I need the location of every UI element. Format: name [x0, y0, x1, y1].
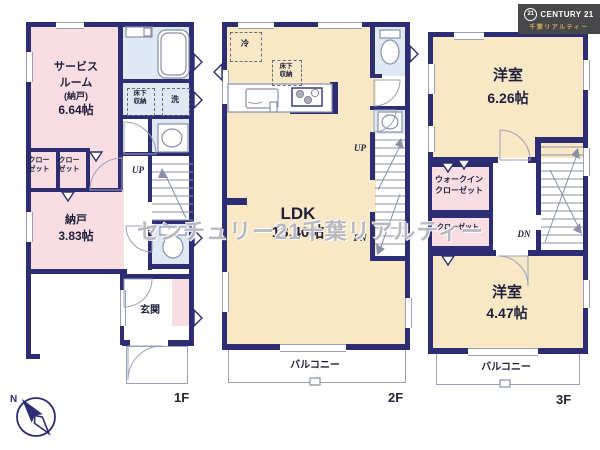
service-room-size: 6.64帖 [58, 104, 93, 117]
closet-label: クロー [59, 157, 80, 164]
closet-label: ゼット [59, 166, 80, 173]
folding-door-marker [90, 152, 102, 161]
exterior-door-marker [194, 310, 202, 326]
closet-label: ゼット [29, 166, 50, 173]
balcony-drain-icon [500, 380, 510, 387]
century21-logo: 21 CENTURY 21 千葉リアルティー [518, 4, 600, 34]
floorplan-2f-fixtures [222, 22, 416, 402]
service-room-name-2: ルーム [60, 78, 93, 90]
washer-icon [144, 28, 151, 36]
floor-label-2f: 2F [388, 390, 403, 405]
bedroom1-size: 6.26帖 [487, 91, 528, 106]
balcony-label: バルコニー [481, 363, 531, 374]
storage-room-name: 納戸 [65, 215, 87, 227]
service-room-name-3: (納戸) [64, 92, 88, 101]
exterior-door-marker [194, 92, 202, 108]
balcony-drain-icon [310, 378, 320, 385]
kitchen-sink-icon [246, 89, 278, 112]
door-arc [498, 256, 528, 286]
logo-row: 21 CENTURY 21 [524, 8, 593, 21]
toilet-icon [380, 30, 400, 64]
stairs [541, 147, 583, 243]
door-arc [124, 122, 156, 154]
washbasin-icon [158, 124, 188, 152]
underfloor-storage-label: 床下 [280, 64, 293, 71]
wic-label: クローゼット [435, 187, 483, 195]
bedroom2-size: 4.47帖 [486, 306, 527, 321]
laundry-label: 洗 [171, 96, 179, 104]
wic-label: ウォークイン [435, 176, 483, 184]
bathtub-icon [158, 30, 189, 78]
fridge-label: 冷 [241, 40, 249, 48]
exterior-door-marker [194, 54, 202, 70]
door-arc [500, 130, 530, 160]
folding-door-marker [442, 163, 454, 172]
entrance-label: 玄関 [140, 306, 160, 317]
logo-subtitle-text: 千葉リアルティー [529, 22, 589, 31]
balcony-label: バルコニー [290, 361, 340, 372]
floorplan-image: サービス ルーム (納戸) 6.64帖 クロー ゼット クロー ゼット 納戸 3… [0, 0, 600, 450]
underfloor-storage-label: 収納 [280, 72, 293, 79]
stairs-up-label: UP [132, 165, 144, 175]
door-arc [374, 80, 400, 106]
stairs-up-label: UP [354, 143, 366, 153]
century21-badge-icon: 21 [524, 8, 537, 21]
bedroom1-name: 洋室 [493, 68, 523, 84]
compass-icon: N [8, 386, 64, 444]
watermark-text: センチュリー21千葉リアルティー [137, 214, 484, 246]
floorplan-1f-fixtures [26, 22, 196, 402]
folding-door-marker [62, 192, 74, 201]
exterior-door-marker [214, 64, 222, 80]
closet-label: クロー [29, 157, 50, 164]
floor-label-3f: 3F [556, 392, 571, 407]
stairs [152, 164, 193, 220]
washbasin-icon [378, 112, 402, 132]
service-room-name-1: サービス [54, 62, 98, 74]
storage-room-size: 3.83帖 [58, 230, 93, 243]
underfloor-storage-label: 床下 [134, 91, 147, 98]
door-arc [90, 158, 122, 190]
folding-door-marker [442, 256, 454, 265]
bedroom2-name: 洋室 [492, 285, 522, 301]
logo-brand-text: CENTURY 21 [540, 10, 593, 19]
floor-label-1f: 1F [174, 390, 189, 405]
compass-north-label: N [10, 394, 17, 405]
folding-door-marker [458, 160, 470, 169]
stairs-down-label: DN [518, 229, 531, 239]
floorplan-2f: 冷 床下 収納 LDK 18.40帖 UP DN バルコニー 2F [222, 22, 416, 402]
exterior-door-marker [410, 46, 418, 62]
door-arc [124, 279, 152, 307]
door-arc [128, 346, 162, 380]
floorplan-1f: サービス ルーム (納戸) 6.64帖 クロー ゼット クロー ゼット 納戸 3… [26, 22, 196, 402]
underfloor-storage-label: 収納 [134, 99, 147, 106]
stove-icon [292, 88, 322, 106]
